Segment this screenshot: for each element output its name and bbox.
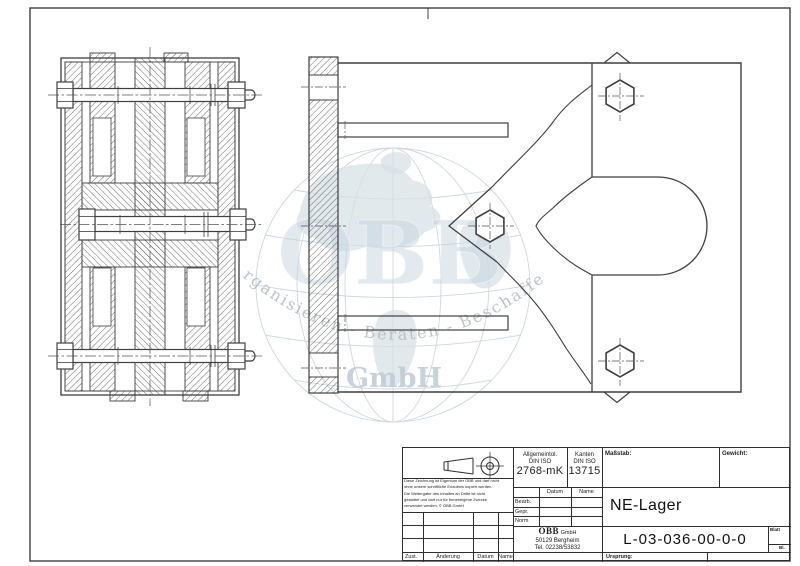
datum-label: Datum [473, 554, 498, 560]
approval-name-header: Name [571, 489, 602, 495]
grid-line [403, 538, 513, 539]
kanten-line1: Kanten [567, 452, 602, 459]
u-notch [592, 177, 707, 275]
grid-line [707, 552, 708, 562]
flange-plate [309, 57, 338, 393]
grid-line [403, 525, 513, 526]
ursprung-label: Ursprung: [606, 554, 633, 560]
blatt-label: Blatt [770, 527, 780, 532]
grid-line [768, 526, 769, 552]
grid-line [719, 448, 720, 487]
grid-line [513, 516, 602, 517]
masstab-label: Maßstab: [605, 451, 631, 457]
drawing-number: L-03-036-00-0-0 [602, 531, 768, 548]
front-section-view [48, 47, 262, 406]
aenderung-label: Änderung [423, 554, 473, 560]
housing-outline [338, 63, 741, 392]
gewicht-label: Gewicht: [722, 451, 747, 457]
projection-symbol [403, 448, 513, 478]
company-phone: Tel. 02238/53832 [513, 545, 602, 553]
tolerance-line1: Allgemeintol. [513, 452, 567, 459]
approval-row-bearb: Bearb. [515, 499, 531, 505]
bl-label: Bl. [779, 545, 785, 550]
name-label: Name [498, 554, 513, 560]
kanten-cell: Kanten DIN ISO 13715 [567, 452, 602, 475]
disclaimer-line: verwendet werden. © OBB GmbH [404, 503, 510, 509]
grid-line [513, 487, 791, 488]
company-form: GmbH [561, 530, 577, 536]
grid-line [513, 497, 602, 498]
company-name-line: OBB GmbH [513, 528, 602, 538]
break-lines [449, 85, 592, 384]
approval-row-norm: Norm [515, 518, 528, 524]
company-city: 50129 Bergheim [513, 538, 602, 546]
kanten-value: 13715 [567, 468, 602, 475]
lower-arm [338, 316, 508, 330]
grid-line [403, 512, 513, 513]
drawing-sheet: OBB Organisieren - Beraten - Beschaffen … [0, 0, 800, 566]
approval-datum-header: Datum [539, 489, 571, 495]
general-tolerance-cell: Allgemeintol. DIN ISO 2768-mK [513, 452, 567, 475]
hex-bolts [476, 80, 634, 377]
zust-label: Zust. [405, 554, 417, 560]
disclaimer-text: Diese Zeichnung ist Eigentum der OBB und… [404, 478, 510, 510]
part-name: NE-Lager [610, 497, 682, 515]
company-name: OBB [538, 526, 559, 536]
company-address-cell: OBB GmbH 50129 Bergheim Tel. 02238/53832 [513, 528, 602, 553]
side-view [301, 53, 741, 403]
bracket-edge [592, 63, 707, 392]
tolerance-value: 2768-mK [513, 468, 567, 475]
approval-row-gepr: Gepr. [515, 509, 528, 515]
upper-arm [338, 123, 508, 137]
